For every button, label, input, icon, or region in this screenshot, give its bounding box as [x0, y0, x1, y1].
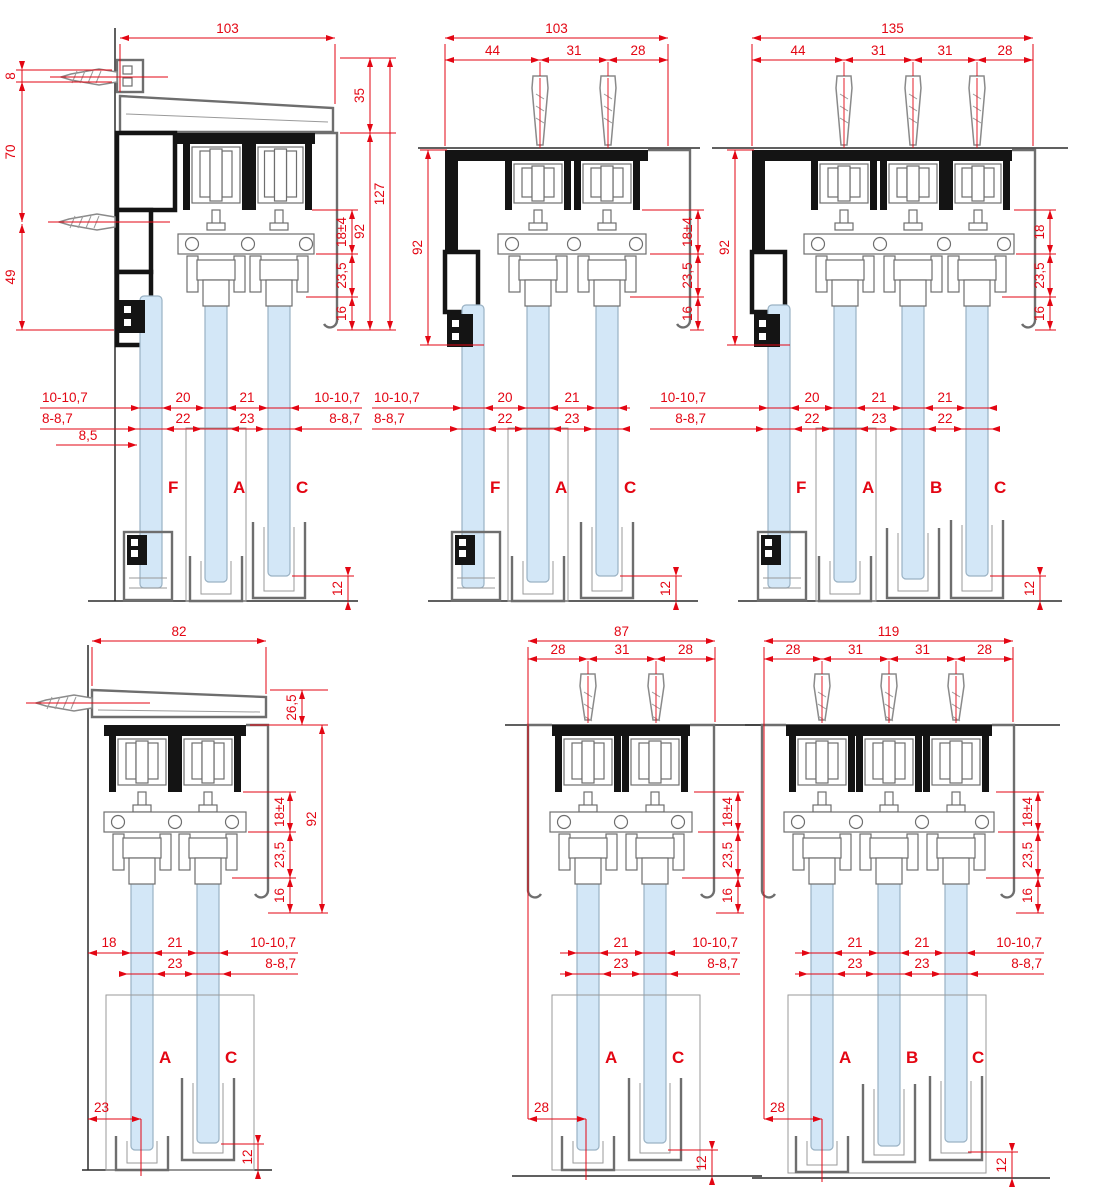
- clamp-body: [588, 260, 626, 280]
- dim-arrow: [608, 57, 617, 63]
- roller-axle: [816, 741, 828, 783]
- clamp-body: [870, 838, 908, 858]
- clamp-wing: [884, 256, 895, 292]
- dimension-label: 70: [3, 144, 18, 159]
- dimension-label: 18±4: [680, 217, 695, 247]
- clip-hole: [452, 320, 459, 327]
- glass-label: C: [672, 1048, 684, 1067]
- dim-arrow: [19, 224, 25, 233]
- dim-arrow: [859, 426, 868, 432]
- dim-arrow: [903, 971, 912, 977]
- bolt-hole: [850, 816, 863, 829]
- dim-arrow: [367, 58, 373, 67]
- dimension-label: 8-8,7: [675, 411, 706, 426]
- dim-arrow: [695, 288, 701, 297]
- roller-module-cheek: [946, 161, 953, 210]
- clamp-jaw: [964, 280, 990, 306]
- ceiling-bracket: [92, 690, 266, 717]
- clamp-wing: [509, 256, 520, 292]
- clamp-jaw: [129, 858, 155, 884]
- dim-arrow: [735, 792, 741, 801]
- glass-label: C: [624, 478, 636, 497]
- dimension-label: 21: [167, 935, 182, 950]
- dimension-label: 26,5: [284, 694, 299, 720]
- clamp-body: [197, 260, 235, 280]
- line: [98, 710, 260, 712]
- clamp-wing: [860, 834, 871, 870]
- dim-arrow: [290, 405, 299, 411]
- roller-module-cheek: [1003, 161, 1010, 210]
- dim-arrow: [120, 35, 129, 41]
- bolt-hole: [874, 238, 887, 251]
- dim-arrow: [588, 656, 597, 662]
- roller: [828, 743, 838, 779]
- dim-arrow: [735, 904, 741, 913]
- bolt-hole: [242, 238, 255, 251]
- hanger-stem: [840, 210, 848, 224]
- clamp-wing: [816, 256, 827, 292]
- line: [126, 114, 328, 122]
- glass-pane: [577, 846, 599, 1150]
- clamp-wing: [559, 834, 570, 870]
- dim-arrow: [367, 133, 373, 142]
- dim-arrow: [695, 245, 701, 254]
- glass-label: A: [605, 1048, 617, 1067]
- bolt-hole: [630, 238, 643, 251]
- bolt-hole: [998, 238, 1011, 251]
- roller: [940, 743, 950, 779]
- clip-hole: [459, 550, 466, 557]
- cover-profile: [992, 725, 1014, 897]
- roller-module-cheek: [175, 736, 182, 792]
- dimension-label: 23: [847, 956, 862, 971]
- dimension-label: 18±4: [334, 217, 349, 247]
- dimension-label: 31: [871, 43, 886, 58]
- dimension-label: 8-8,7: [265, 956, 296, 971]
- dim-arrow: [880, 656, 889, 662]
- clamp-jaw: [900, 280, 926, 306]
- roller-module-cheek: [109, 736, 116, 792]
- roller: [594, 743, 604, 779]
- glass-pane: [945, 846, 967, 1142]
- dim-arrow: [927, 426, 936, 432]
- clamp-body: [636, 838, 674, 858]
- dim-arrow: [632, 971, 641, 977]
- dimension-label: 23,5: [272, 842, 287, 868]
- clamp-body: [569, 838, 607, 858]
- dimension-label: 16: [1032, 306, 1047, 321]
- clamp-jaw: [575, 858, 601, 884]
- dim-arrow: [759, 405, 768, 411]
- dim-arrow: [453, 405, 462, 411]
- dim-arrow: [1047, 288, 1053, 297]
- glass-label: C: [972, 1048, 984, 1067]
- dim-arrow: [793, 426, 802, 432]
- dim-arrow: [349, 245, 355, 254]
- glass-pane: [205, 270, 227, 582]
- clamp-wing: [673, 834, 684, 870]
- cover-profile: [528, 725, 552, 897]
- roller-axle: [601, 166, 613, 201]
- hanger-stem: [952, 792, 960, 806]
- clamp-jaw: [266, 280, 292, 306]
- dim-arrow: [656, 656, 665, 662]
- dimension-label: 8-8,7: [374, 411, 405, 426]
- dim-arrow: [802, 950, 811, 956]
- roller-module-cheek: [305, 144, 312, 210]
- dimension-label: 22: [804, 411, 819, 426]
- dim-arrow: [193, 426, 202, 432]
- dim-arrow: [735, 878, 741, 887]
- roller-module-cheek: [789, 736, 796, 792]
- clamp-body: [803, 838, 841, 858]
- glass-label: F: [168, 478, 178, 497]
- dim-arrow: [764, 638, 773, 644]
- dim-arrow: [988, 405, 997, 411]
- dimension-label: 20: [804, 390, 819, 405]
- bolt-plate: [784, 812, 994, 832]
- bolt-hole: [169, 816, 182, 829]
- roller: [544, 168, 554, 197]
- wall-clip: [117, 60, 143, 92]
- roller-axle: [838, 166, 850, 201]
- dimension-label: 92: [717, 240, 732, 255]
- roller: [873, 743, 883, 779]
- roller-module-cheek: [870, 161, 877, 210]
- roller-module-cheek: [633, 161, 640, 210]
- dim-arrow: [1037, 567, 1043, 576]
- roller-module-cheek: [982, 736, 989, 792]
- clamp-body: [519, 260, 557, 280]
- dim-arrow: [977, 57, 986, 63]
- cover-profile: [762, 725, 786, 897]
- dim-arrow: [932, 971, 941, 977]
- dimension-label: 103: [545, 21, 568, 36]
- dim-arrow: [956, 656, 965, 662]
- clamp-jaw: [876, 858, 902, 884]
- dimension-label: 18±4: [1020, 797, 1035, 827]
- clip-hole: [459, 539, 466, 546]
- dim-arrow: [528, 638, 537, 644]
- glass-pane: [131, 846, 153, 1150]
- dim-arrow: [602, 971, 611, 977]
- track-profile: [175, 133, 315, 144]
- wall-side-profile: [752, 150, 765, 252]
- dimension-label: 21: [613, 935, 628, 950]
- dim-arrow: [287, 823, 293, 832]
- dim-arrow: [319, 904, 325, 913]
- dim-arrow: [799, 971, 808, 977]
- bolt-plate: [804, 234, 1014, 254]
- dimension-label: 23,5: [720, 842, 735, 868]
- dim-arrow: [518, 405, 527, 411]
- wall-side-profile: [752, 252, 785, 312]
- roller-axle: [275, 149, 287, 201]
- dim-arrow: [579, 656, 588, 662]
- dim-arrow: [635, 950, 644, 956]
- dimension-label: 23,5: [1032, 262, 1047, 288]
- dim-arrow: [900, 950, 909, 956]
- dimension-label: 10-10,7: [250, 935, 296, 950]
- dimension-label: 87: [614, 624, 629, 639]
- dim-arrow: [528, 656, 537, 662]
- technical-drawing: 10387049359212718±423,51610-10,7202110-1…: [0, 0, 1094, 1200]
- dimension-label: 20: [175, 390, 190, 405]
- roller: [613, 168, 623, 197]
- roller: [828, 168, 838, 197]
- dim-arrow: [659, 35, 668, 41]
- bolt-hole: [916, 816, 929, 829]
- dim-arrow: [287, 832, 293, 841]
- dim-arrow: [445, 35, 454, 41]
- roller-module-cheek: [923, 736, 930, 792]
- glass-label: A: [839, 1048, 851, 1067]
- dimension-label: 23: [613, 956, 628, 971]
- dim-arrow: [540, 57, 549, 63]
- track-profile: [104, 725, 246, 736]
- clamp-body: [260, 260, 298, 280]
- clamp-wing: [927, 834, 938, 870]
- dimension-label: 10-10,7: [42, 390, 88, 405]
- hanger-nut: [207, 223, 225, 230]
- dim-arrow: [230, 426, 239, 432]
- hanger-stem: [138, 792, 146, 806]
- glass-label: A: [233, 478, 245, 497]
- dim-arrow: [88, 950, 97, 956]
- clamp-wing: [840, 834, 851, 870]
- dim-arrow: [869, 950, 878, 956]
- clamp-jaw: [832, 280, 858, 306]
- clamp-wing: [234, 256, 245, 292]
- roller-axle: [950, 741, 962, 783]
- dim-arrow: [706, 656, 715, 662]
- roller-module-cheek: [249, 144, 256, 210]
- roller: [897, 168, 907, 197]
- clamp-jaw: [594, 280, 620, 306]
- dim-arrow: [913, 57, 922, 63]
- dimension-label: 10-10,7: [314, 390, 360, 405]
- roller-axle: [582, 741, 594, 783]
- dim-arrow: [587, 405, 596, 411]
- hanger-nut: [133, 805, 151, 812]
- dim-arrow: [752, 35, 761, 41]
- dimension-label: 20: [497, 390, 512, 405]
- dim-arrow: [822, 426, 831, 432]
- roller: [962, 743, 972, 779]
- dimension-label: 12: [658, 581, 673, 596]
- clamp-wing: [995, 256, 1006, 292]
- dim-arrow: [659, 57, 668, 63]
- roller: [200, 151, 210, 197]
- roller: [148, 743, 158, 779]
- glass-pane: [878, 846, 900, 1146]
- roller-module-cheek: [880, 161, 887, 210]
- roller: [984, 168, 994, 197]
- dimension-label: 18: [101, 935, 116, 950]
- dimension-label: 22: [937, 411, 952, 426]
- roller: [222, 151, 232, 197]
- dim-arrow: [866, 971, 875, 977]
- dim-arrow: [1009, 1178, 1015, 1187]
- dimension-label: 23,5: [680, 262, 695, 288]
- roller: [661, 743, 671, 779]
- dim-arrow: [904, 57, 913, 63]
- dim-arrow: [387, 58, 393, 67]
- track-profile: [552, 725, 690, 736]
- dimension-label: 23,5: [334, 262, 349, 288]
- hanger-nut: [969, 223, 987, 230]
- dim-arrow: [695, 297, 701, 306]
- clamp-wing: [556, 256, 567, 292]
- hanger-stem: [534, 210, 542, 224]
- cover-profile: [246, 725, 268, 897]
- dimension-label: 22: [497, 411, 512, 426]
- dimension-label: 31: [848, 642, 863, 657]
- dim-arrow: [1004, 638, 1013, 644]
- clip-hole: [124, 306, 131, 313]
- dim-arrow: [666, 950, 675, 956]
- dimension-label: 18±4: [272, 797, 287, 827]
- dimension-label: 12: [330, 581, 345, 596]
- clamp-jaw: [642, 858, 668, 884]
- clamp-wing: [250, 256, 261, 292]
- dim-arrow: [1047, 210, 1053, 219]
- clip-hole: [452, 333, 459, 340]
- dimension-label: 44: [790, 43, 806, 58]
- dimension-label: 28: [770, 1100, 785, 1115]
- dimension-label: 8,5: [79, 428, 98, 443]
- glass-label: C: [225, 1048, 237, 1067]
- dim-arrow: [367, 124, 373, 133]
- dimension-label: 16: [1020, 888, 1035, 903]
- roller-axle: [907, 166, 919, 201]
- dimension-label: 103: [216, 21, 239, 36]
- hanger-stem: [275, 210, 283, 224]
- dimension-label: 16: [334, 306, 349, 321]
- dim-arrow: [969, 971, 978, 977]
- dim-arrow: [893, 405, 902, 411]
- dim-arrow: [531, 57, 540, 63]
- wall-profile: [117, 210, 151, 272]
- dim-arrow: [188, 950, 197, 956]
- hanger-stem: [212, 210, 220, 224]
- dim-arrow: [947, 656, 956, 662]
- dimension-label: 18±4: [720, 797, 735, 827]
- dimension-label: 82: [171, 624, 186, 639]
- dim-arrow: [1047, 297, 1053, 306]
- dimension-label: 31: [915, 642, 930, 657]
- dim-arrow: [1024, 35, 1033, 41]
- dim-arrow: [128, 426, 137, 432]
- track-profile: [765, 150, 1012, 161]
- dimension-label: 135: [881, 21, 904, 36]
- glass-label: A: [862, 478, 874, 497]
- dim-arrow: [669, 971, 678, 977]
- dim-arrow: [255, 1135, 261, 1144]
- glass-label: C: [296, 478, 308, 497]
- dim-arrow: [695, 321, 701, 330]
- dim-arrow: [822, 656, 831, 662]
- glass-pane: [268, 270, 290, 576]
- hanger-nut: [947, 805, 965, 812]
- dim-arrow: [19, 213, 25, 222]
- clamp-wing: [226, 834, 237, 870]
- dimension-label: 23: [239, 411, 254, 426]
- clip-hole: [131, 550, 138, 557]
- dim-arrow: [257, 638, 266, 644]
- hanger-nut: [880, 805, 898, 812]
- roller-module-cheek: [915, 736, 922, 792]
- dim-arrow: [673, 567, 679, 576]
- dimension-label: 28: [977, 642, 992, 657]
- bottom-guide-profile: [552, 995, 700, 1170]
- hanger-nut: [646, 805, 664, 812]
- clamp-jaw: [203, 280, 229, 306]
- hanger-nut: [598, 223, 616, 230]
- dimension-label: 92: [410, 240, 425, 255]
- dim-arrow: [1009, 1143, 1015, 1152]
- roller-module-cheek: [622, 736, 629, 792]
- dim-arrow: [487, 426, 496, 432]
- glass-pane: [811, 846, 833, 1150]
- fixed-glass-clip: [119, 300, 145, 333]
- clamp-wing: [931, 256, 942, 292]
- dim-arrow: [287, 904, 293, 913]
- cover-profile: [690, 725, 714, 897]
- dim-arrow: [349, 210, 355, 219]
- dimension-label: 31: [566, 43, 581, 58]
- dim-arrow: [88, 1116, 97, 1122]
- dim-arrow: [345, 601, 351, 610]
- dimension-label: 28: [534, 1100, 549, 1115]
- hanger-stem: [885, 792, 893, 806]
- dimension-label: 8: [3, 72, 18, 80]
- dim-arrow: [935, 950, 944, 956]
- hanger-stem: [818, 792, 826, 806]
- dimension-label: 10-10,7: [374, 390, 420, 405]
- dim-arrow: [856, 405, 865, 411]
- bolt-hole: [300, 238, 313, 251]
- bolt-hole: [615, 816, 628, 829]
- dimension-label: 8-8,7: [329, 411, 360, 426]
- clamp-body: [123, 838, 161, 858]
- clamp-wing: [907, 834, 918, 870]
- roller-axle: [532, 166, 544, 201]
- dim-arrow: [836, 971, 845, 977]
- roller-module-cheek: [811, 161, 818, 210]
- hanger-stem: [651, 792, 659, 806]
- clip-hole: [759, 320, 766, 327]
- roller: [962, 168, 972, 197]
- clip-hole: [131, 539, 138, 546]
- dim-arrow: [709, 1176, 715, 1185]
- roller-axle: [972, 166, 984, 201]
- roller-module-cheek: [848, 736, 855, 792]
- dim-arrow: [813, 656, 822, 662]
- roller: [214, 743, 224, 779]
- dim-arrow: [1035, 878, 1041, 887]
- roller: [572, 743, 582, 779]
- glass-label: C: [994, 478, 1006, 497]
- hanger-nut: [813, 805, 831, 812]
- dim-arrow: [1035, 823, 1041, 832]
- dimension-label: 12: [240, 1149, 255, 1164]
- bolt-hole: [506, 238, 519, 251]
- roller-module-cheek: [856, 736, 863, 792]
- bolt-hole: [976, 816, 989, 829]
- dimension-label: 21: [847, 935, 862, 950]
- hanger-nut: [904, 223, 922, 230]
